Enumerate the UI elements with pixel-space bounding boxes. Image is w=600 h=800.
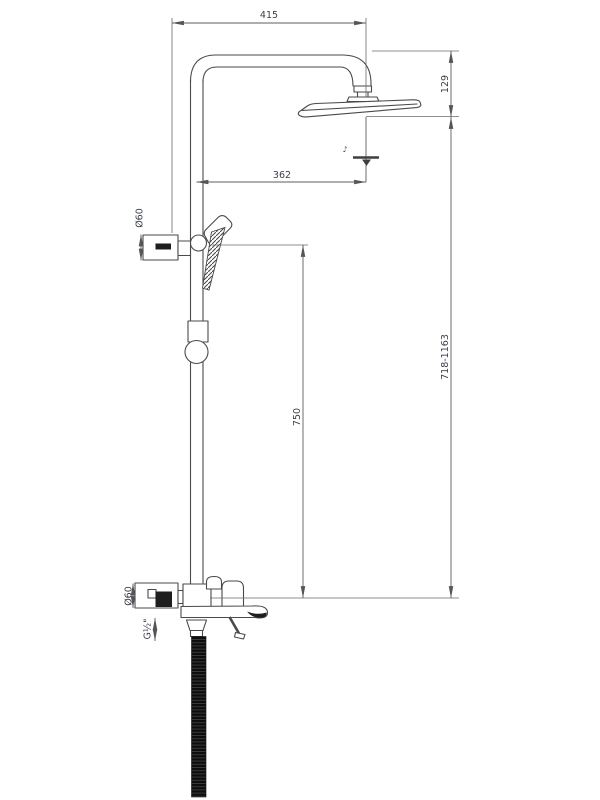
hand-shower bbox=[203, 216, 232, 290]
hose-connector-nut bbox=[187, 620, 207, 637]
dim-lower-escutcheon-label: Ø60 bbox=[124, 586, 135, 606]
dim-upper-escutcheon-label: Ø60 bbox=[135, 208, 146, 228]
shower-drawing-svg: ♪ bbox=[0, 0, 600, 800]
dim-head-drop-label: 129 bbox=[440, 75, 451, 93]
upper-wall-bracket bbox=[143, 235, 191, 260]
slider-ring bbox=[185, 321, 208, 364]
overhead-shower-head bbox=[298, 100, 421, 117]
dim-hose-thread-label: G½" bbox=[143, 619, 154, 640]
hand-shower-holder bbox=[191, 235, 207, 251]
dimension-lines bbox=[133, 23, 451, 641]
technical-drawing-page: ♪ bbox=[0, 0, 600, 800]
dim-arm-width-label: 415 bbox=[260, 10, 278, 21]
lower-wall-flange bbox=[135, 583, 183, 608]
bath-spout bbox=[181, 606, 268, 618]
shower-hose bbox=[192, 637, 207, 798]
shower-arm bbox=[191, 55, 380, 102]
spray-mark-icon: ♪ bbox=[342, 145, 347, 154]
dim-overall-height-label: 718-1163 bbox=[440, 334, 451, 380]
spray-direction-mark: ♪ bbox=[342, 117, 379, 182]
dim-slide-height-label: 750 bbox=[292, 408, 303, 426]
mixer-lever bbox=[230, 617, 246, 639]
dim-head-offset-label: 362 bbox=[273, 170, 291, 181]
